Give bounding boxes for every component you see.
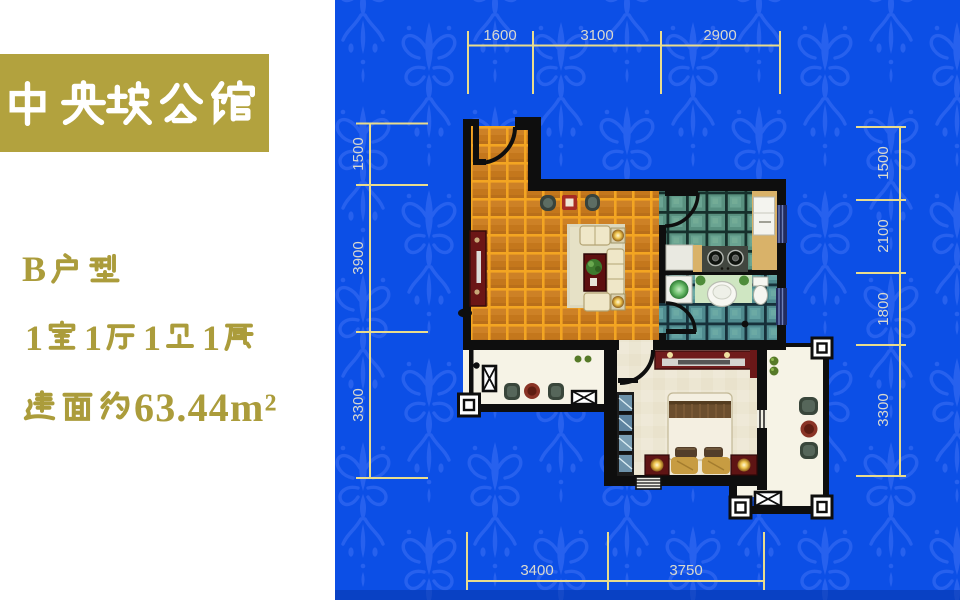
svg-text:1500: 1500 bbox=[350, 137, 367, 170]
svg-text:1: 1 bbox=[202, 318, 220, 358]
svg-text:3300: 3300 bbox=[350, 388, 367, 421]
svg-text:1: 1 bbox=[143, 318, 161, 358]
svg-text:3750: 3750 bbox=[669, 562, 702, 579]
svg-text:3900: 3900 bbox=[350, 241, 367, 274]
svg-text:2100: 2100 bbox=[875, 219, 892, 252]
svg-text:1: 1 bbox=[84, 318, 102, 358]
svg-text:1: 1 bbox=[25, 318, 43, 358]
svg-text:2900: 2900 bbox=[703, 27, 736, 44]
svg-text:1600: 1600 bbox=[483, 27, 516, 44]
svg-text:1500: 1500 bbox=[875, 146, 892, 179]
svg-text:3400: 3400 bbox=[520, 562, 553, 579]
svg-text:3300: 3300 bbox=[875, 393, 892, 426]
svg-text:B: B bbox=[22, 249, 46, 289]
svg-text:1800: 1800 bbox=[875, 292, 892, 325]
svg-text:3100: 3100 bbox=[580, 27, 613, 44]
svg-text:63.44m²: 63.44m² bbox=[134, 385, 278, 430]
